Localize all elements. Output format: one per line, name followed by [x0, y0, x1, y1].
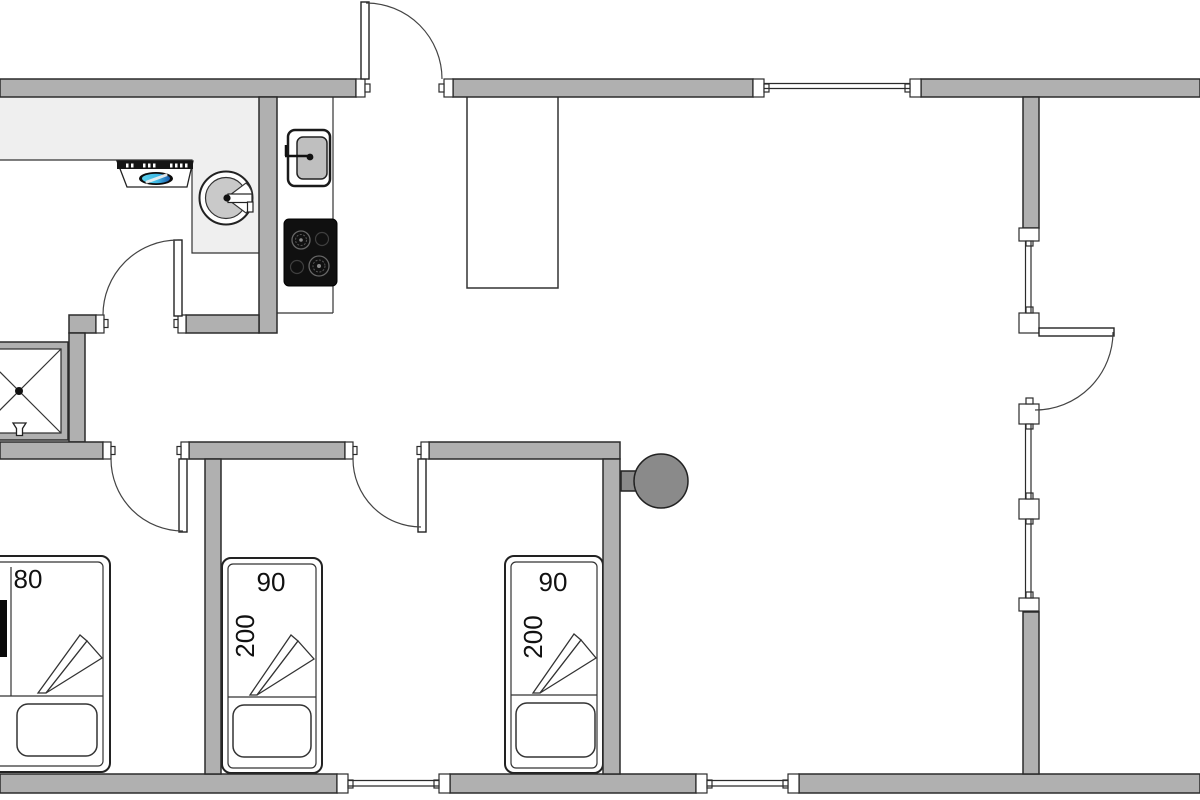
floor-plan-drawing: 80 90 200 90 200: [0, 0, 1200, 800]
wood-stove-icon: [621, 454, 688, 508]
window-bottom-right: [707, 781, 788, 787]
cooker-hood-icon: [117, 161, 193, 187]
wall-right-bottom: [1023, 612, 1039, 774]
bedroom1-door: [111, 459, 187, 532]
wall-kitchen-horizontal-left: [69, 315, 96, 333]
terrace-door: [1035, 328, 1114, 410]
single-bed-right: 90 200: [505, 556, 603, 773]
wall-right-top: [1023, 97, 1039, 228]
wall-top-middle: [453, 79, 753, 97]
wall-bottom-middle: [450, 774, 696, 793]
bed-width-label: 90: [539, 567, 568, 597]
bed-width-label: 80: [14, 564, 43, 594]
wall-bottom-right: [799, 774, 1200, 793]
wall-bedroom-right: [603, 459, 620, 774]
small-sink-icon: [285, 130, 330, 186]
wall-kitchen-vertical: [259, 97, 277, 333]
shower-icon: [0, 342, 68, 440]
wall-bedroom-divider: [205, 459, 221, 774]
wall-hall-left: [69, 333, 85, 442]
window-top: [764, 84, 910, 89]
wall-kitchen-horizontal: [186, 315, 259, 333]
wall-bedroom-top-3: [429, 442, 620, 459]
single-bed-left: 90 200: [222, 558, 322, 773]
bedroom2-door: [353, 459, 426, 532]
wall-top-right: [921, 79, 1200, 97]
round-sink-icon: [200, 172, 254, 225]
bed-width-label: 90: [257, 567, 286, 597]
kitchen-door: [103, 240, 182, 316]
entrance-door: [361, 2, 442, 79]
hob-icon: [284, 219, 337, 286]
wall-bedroom-top-2: [189, 442, 345, 459]
windows: [348, 84, 1031, 787]
wall-bottom-left: [0, 774, 337, 793]
floor-plan: 80 90 200 90 200: [0, 0, 1200, 800]
double-bed: 80: [0, 556, 110, 772]
cut-off-furniture: [0, 600, 7, 657]
bed-length-label: 200: [518, 615, 548, 658]
wall-top-left: [0, 79, 356, 97]
dining-table: [467, 95, 558, 288]
wall-bedroom-top-1: [0, 442, 103, 459]
window-bottom-left: [348, 781, 439, 787]
bed-length-label: 200: [230, 614, 260, 657]
